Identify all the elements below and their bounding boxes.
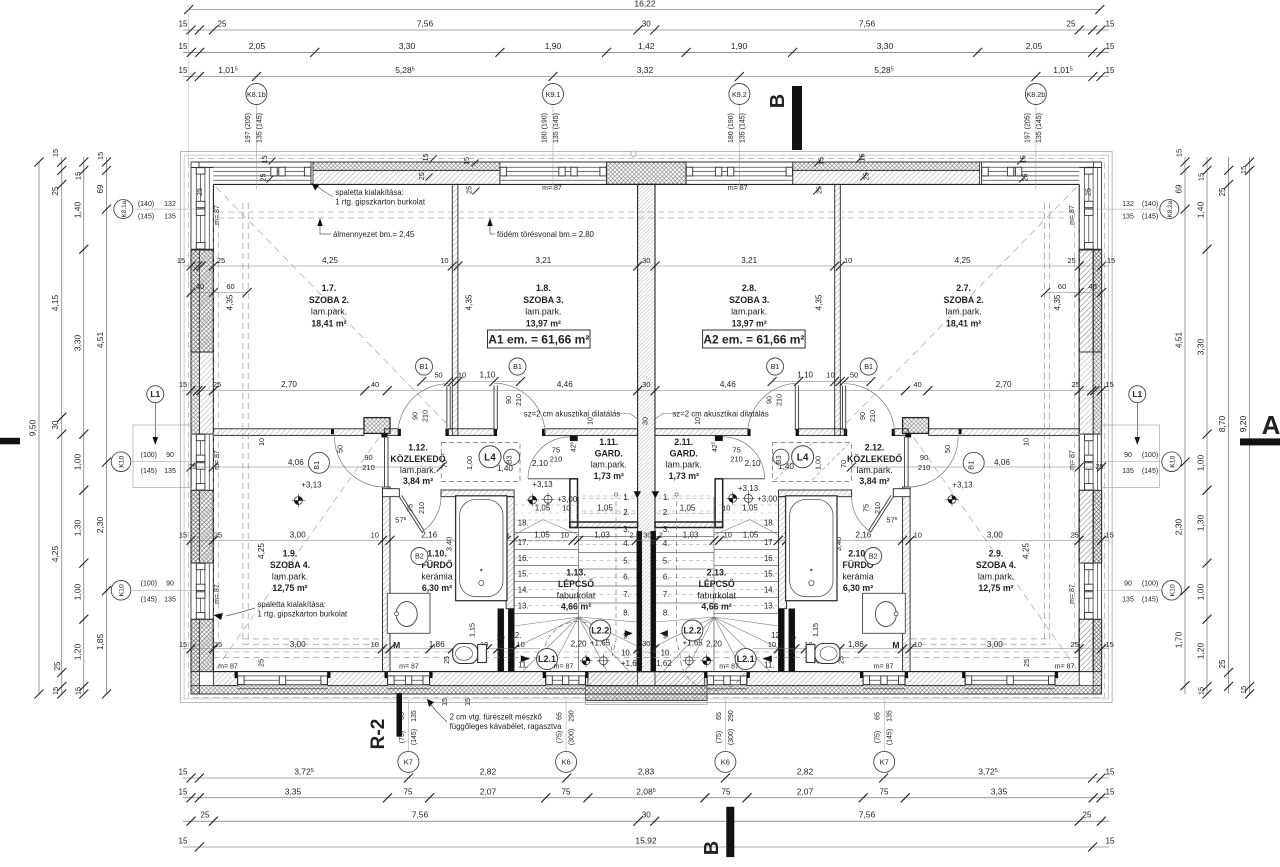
svg-text:B: B	[767, 94, 789, 108]
svg-text:25: 25	[1070, 531, 1078, 540]
svg-text:135: 135	[411, 710, 418, 722]
svg-text:K8.2a: K8.2a	[1167, 200, 1174, 217]
svg-text:1,05: 1,05	[535, 504, 551, 513]
svg-text:A: A	[1262, 410, 1280, 440]
svg-text:2,30: 2,30	[95, 516, 105, 533]
svg-text:K6: K6	[562, 758, 571, 767]
svg-text:2,16: 2,16	[855, 531, 871, 540]
svg-text:30: 30	[643, 531, 651, 540]
svg-text:1,05: 1,05	[742, 504, 758, 513]
svg-text:135 (145): 135 (145)	[256, 113, 263, 143]
svg-text:15: 15	[1019, 156, 1028, 164]
svg-text:30: 30	[642, 811, 651, 820]
svg-text:2,70: 2,70	[281, 380, 297, 389]
svg-text:lam.park.: lam.park.	[311, 307, 347, 317]
svg-text:2,20: 2,20	[571, 640, 587, 649]
svg-text:25: 25	[1083, 811, 1092, 820]
svg-text:25: 25	[814, 186, 823, 194]
svg-text:13.: 13.	[518, 601, 529, 610]
svg-text:+1,62: +1,62	[621, 659, 642, 668]
svg-text:3,30: 3,30	[73, 334, 83, 351]
svg-text:(145): (145)	[887, 729, 894, 745]
svg-text:15: 15	[1239, 686, 1248, 694]
svg-text:135: 135	[164, 214, 176, 221]
svg-text:lam.park.: lam.park.	[400, 465, 436, 475]
svg-text:B1: B1	[420, 362, 429, 371]
svg-text:25: 25	[464, 186, 473, 194]
svg-text:50: 50	[943, 445, 952, 453]
svg-text:8,70: 8,70	[1217, 415, 1227, 432]
svg-text:16,22: 16,22	[634, 0, 656, 9]
svg-text:födém törésvonal bm.= 2,80: födém törésvonal bm.= 2,80	[497, 230, 595, 239]
svg-text:LÉPCSŐ: LÉPCSŐ	[699, 578, 735, 589]
svg-text:210: 210	[918, 463, 931, 472]
svg-text:1,90: 1,90	[545, 41, 562, 51]
svg-text:25: 25	[256, 659, 265, 667]
svg-text:spaletta kialakítása:: spaletta kialakítása:	[335, 188, 403, 197]
svg-text:+3,00: +3,00	[757, 494, 778, 503]
svg-text:SZOBA 2.: SZOBA 2.	[309, 295, 349, 305]
svg-text:10: 10	[562, 504, 570, 513]
svg-text:K10: K10	[119, 455, 126, 467]
svg-text:SZOBA 4.: SZOBA 4.	[270, 560, 310, 570]
svg-text:1 rtg. gipszkarton burkolat: 1 rtg. gipszkarton burkolat	[258, 610, 349, 619]
svg-text:+3,13: +3,13	[301, 481, 322, 490]
svg-text:25: 25	[218, 20, 227, 29]
svg-text:4,35: 4,35	[226, 294, 235, 310]
svg-text:15: 15	[177, 256, 185, 265]
svg-text:15: 15	[1105, 380, 1113, 389]
svg-text:16.: 16.	[518, 554, 529, 563]
svg-text:30: 30	[641, 417, 650, 425]
svg-text:faburkolat: faburkolat	[557, 590, 596, 600]
svg-text:18.: 18.	[764, 519, 775, 528]
svg-text:25: 25	[1067, 20, 1076, 29]
svg-text:18,41 m²: 18,41 m²	[311, 319, 346, 329]
svg-text:30: 30	[642, 256, 650, 265]
svg-text:GARD.: GARD.	[670, 448, 698, 458]
svg-text:75: 75	[732, 446, 740, 455]
svg-text:m= 87: m= 87	[719, 664, 739, 671]
svg-text:15: 15	[1197, 687, 1206, 695]
svg-text:15: 15	[462, 157, 471, 165]
svg-text:15: 15	[1106, 787, 1115, 796]
svg-text:15.: 15.	[764, 569, 775, 578]
svg-text:4,46: 4,46	[557, 380, 573, 389]
svg-text:m= 87: m= 87	[399, 664, 419, 671]
svg-text:2.8.: 2.8.	[742, 283, 757, 293]
svg-text:12.: 12.	[511, 631, 522, 640]
svg-text:9.: 9.	[663, 632, 670, 641]
svg-text:30: 30	[642, 20, 651, 29]
svg-text:25: 25	[213, 380, 221, 389]
svg-text:(140): (140)	[138, 201, 154, 208]
svg-text:K8.1a: K8.1a	[121, 200, 128, 217]
svg-text:10.: 10.	[621, 648, 632, 657]
svg-text:4,06: 4,06	[994, 458, 1010, 467]
svg-text:1.: 1.	[623, 493, 630, 502]
svg-text:4,25: 4,25	[1022, 543, 1031, 559]
svg-text:13,97 m²: 13,97 m²	[526, 319, 561, 329]
svg-text:30: 30	[642, 380, 650, 389]
svg-text:2 cm vtg. fürészelt mészkő: 2 cm vtg. fürészelt mészkő	[450, 713, 543, 722]
svg-text:2,20: 2,20	[706, 640, 722, 649]
svg-text:K9.1: K9.1	[546, 90, 561, 99]
svg-text:3,21: 3,21	[741, 256, 757, 265]
svg-text:lam.park.: lam.park.	[525, 307, 561, 317]
svg-text:132: 132	[164, 201, 176, 208]
svg-text:10: 10	[826, 371, 834, 380]
svg-text:(145): (145)	[411, 729, 418, 745]
svg-text:(145): (145)	[141, 597, 157, 604]
svg-text:15: 15	[51, 687, 60, 695]
svg-text:L4: L4	[484, 452, 496, 463]
svg-text:lam.park.: lam.park.	[857, 465, 893, 475]
svg-text:(100): (100)	[141, 452, 157, 459]
svg-text:210: 210	[775, 394, 784, 406]
svg-text:135: 135	[887, 710, 894, 722]
svg-text:15: 15	[179, 837, 188, 846]
svg-text:18.: 18.	[518, 519, 529, 528]
svg-text:210: 210	[730, 455, 743, 464]
svg-text:(300): (300)	[569, 729, 576, 745]
svg-text:25: 25	[189, 462, 197, 471]
svg-text:K10: K10	[1169, 584, 1176, 596]
svg-text:210: 210	[417, 502, 426, 514]
svg-text:14.: 14.	[764, 585, 775, 594]
svg-text:6,30 m²: 6,30 m²	[843, 583, 873, 593]
svg-text:1.13.: 1.13.	[566, 568, 586, 578]
svg-text:75: 75	[880, 787, 889, 796]
svg-text:faburkolat: faburkolat	[697, 590, 736, 600]
svg-text:1,20: 1,20	[1196, 642, 1206, 659]
svg-text:(145): (145)	[1142, 597, 1158, 604]
svg-text:12,75 m²: 12,75 m²	[978, 583, 1013, 593]
svg-text:lam.park.: lam.park.	[591, 460, 627, 470]
svg-text:13.: 13.	[764, 601, 775, 610]
svg-text:10: 10	[724, 531, 732, 540]
svg-text:2.12.: 2.12.	[865, 443, 885, 453]
svg-text:4,25: 4,25	[322, 256, 338, 265]
svg-text:L2.1: L2.1	[737, 654, 755, 664]
svg-text:69: 69	[96, 184, 105, 193]
svg-text:25: 25	[1067, 256, 1075, 265]
svg-text:1,15: 1,15	[811, 623, 820, 637]
svg-text:1.: 1.	[663, 493, 670, 502]
svg-text:1.7.: 1.7.	[322, 283, 337, 293]
svg-text:75: 75	[404, 787, 413, 796]
svg-text:1,05: 1,05	[743, 531, 759, 540]
svg-text:90: 90	[920, 453, 928, 462]
svg-text:m= 87: m= 87	[214, 584, 221, 604]
svg-text:(145): (145)	[141, 468, 157, 475]
svg-text:25: 25	[258, 174, 267, 182]
svg-text:14.: 14.	[518, 585, 529, 594]
svg-text:+1,62: +1,62	[651, 659, 672, 668]
svg-text:3.: 3.	[663, 525, 670, 534]
svg-text:90: 90	[858, 412, 867, 420]
svg-text:10.: 10.	[661, 648, 672, 657]
svg-text:20: 20	[788, 635, 796, 642]
svg-text:15: 15	[817, 157, 826, 165]
svg-text:50: 50	[434, 371, 442, 380]
svg-text:30: 30	[642, 641, 650, 648]
svg-text:4,35: 4,35	[1053, 294, 1062, 310]
svg-text:m= 87: m= 87	[728, 185, 748, 192]
svg-text:m= 87: m= 87	[554, 664, 574, 671]
svg-text:10: 10	[458, 371, 466, 380]
svg-text:90: 90	[1124, 452, 1132, 459]
svg-text:15.: 15.	[518, 569, 529, 578]
svg-text:1,42: 1,42	[638, 41, 655, 51]
svg-text:15: 15	[858, 154, 867, 162]
svg-text:210: 210	[873, 502, 882, 514]
svg-text:10: 10	[440, 256, 448, 265]
svg-text:135 (145): 135 (145)	[553, 113, 560, 143]
svg-text:3,30: 3,30	[399, 41, 416, 51]
svg-text:álmennyezet bm.= 2,45: álmennyezet bm.= 2,45	[333, 230, 415, 239]
svg-text:50: 50	[336, 445, 345, 453]
svg-text:25: 25	[1084, 188, 1093, 196]
svg-text:4,25: 4,25	[955, 256, 971, 265]
svg-text:75: 75	[722, 787, 731, 796]
svg-text:2,07: 2,07	[480, 786, 497, 796]
svg-text:210: 210	[868, 410, 877, 422]
svg-text:40: 40	[196, 282, 204, 291]
svg-text:4,06: 4,06	[288, 458, 304, 467]
svg-text:132: 132	[1122, 201, 1134, 208]
svg-text:135: 135	[1122, 214, 1134, 221]
svg-text:15: 15	[179, 380, 187, 389]
svg-text:25: 25	[417, 172, 426, 180]
svg-text:(140): (140)	[1142, 201, 1158, 208]
svg-text:15: 15	[179, 787, 188, 796]
svg-text:18,41 m²: 18,41 m²	[946, 319, 981, 329]
svg-text:15: 15	[179, 640, 187, 649]
svg-text:15: 15	[51, 149, 60, 157]
svg-text:kerámia: kerámia	[842, 572, 873, 582]
svg-text:1,05: 1,05	[597, 504, 613, 513]
svg-text:10: 10	[768, 640, 776, 649]
svg-text:1,15: 1,15	[468, 623, 477, 637]
svg-text:210: 210	[421, 410, 430, 422]
svg-text:15: 15	[421, 154, 430, 162]
svg-text:1 rtg. gipszkarton burkolat: 1 rtg. gipszkarton burkolat	[335, 198, 426, 207]
svg-text:40: 40	[913, 380, 921, 389]
svg-text:6,30 m²: 6,30 m²	[422, 583, 452, 593]
svg-text:R-2: R-2	[368, 719, 389, 750]
svg-text:15: 15	[179, 531, 187, 540]
svg-text:135 (145): 135 (145)	[1036, 113, 1043, 143]
svg-text:spaletta kialakítása:: spaletta kialakítása:	[258, 600, 326, 609]
svg-text:60: 60	[226, 282, 234, 291]
svg-text:70: 70	[440, 460, 449, 468]
svg-text:A1 em. = 61,66 m²: A1 em. = 61,66 m²	[488, 333, 589, 347]
svg-text:4,15: 4,15	[50, 294, 60, 311]
svg-text:5.: 5.	[663, 557, 670, 566]
svg-text:2.13.: 2.13.	[707, 568, 727, 578]
svg-text:210: 210	[550, 455, 563, 464]
svg-text:1.12.: 1.12.	[408, 443, 428, 453]
svg-text:1,86: 1,86	[429, 640, 445, 649]
svg-text:8.: 8.	[623, 608, 630, 617]
svg-text:(75): (75)	[557, 731, 564, 743]
svg-text:1,05: 1,05	[680, 504, 696, 513]
svg-text:(300): (300)	[728, 729, 735, 745]
svg-text:1,10: 1,10	[797, 371, 813, 380]
svg-text:15: 15	[465, 698, 472, 706]
svg-text:4,35: 4,35	[814, 294, 823, 310]
svg-text:180 (190): 180 (190)	[542, 113, 549, 143]
svg-text:1,73 m²: 1,73 m²	[669, 471, 699, 481]
svg-text:2.: 2.	[663, 508, 670, 517]
svg-text:9,50: 9,50	[28, 419, 38, 436]
svg-text:L1: L1	[150, 389, 160, 399]
svg-text:210: 210	[514, 394, 523, 406]
svg-text:30: 30	[51, 420, 60, 429]
svg-text:B2: B2	[415, 552, 424, 561]
svg-text:6.: 6.	[623, 572, 630, 581]
svg-text:lam.park.: lam.park.	[666, 460, 702, 470]
svg-text:+3,13: +3,13	[952, 481, 973, 490]
svg-text:25: 25	[1070, 640, 1078, 649]
svg-text:17.: 17.	[764, 538, 775, 547]
svg-text:3,00: 3,00	[987, 640, 1003, 649]
svg-text:4,25: 4,25	[50, 545, 60, 562]
svg-text:K9.2: K9.2	[732, 90, 747, 99]
svg-text:15: 15	[96, 152, 105, 160]
svg-text:25: 25	[195, 188, 204, 196]
svg-text:m= 87: m= 87	[1055, 664, 1075, 671]
svg-text:1,40: 1,40	[1196, 201, 1206, 218]
svg-text:1,03: 1,03	[683, 531, 699, 540]
svg-text:135: 135	[1122, 597, 1134, 604]
svg-text:2,10: 2,10	[745, 459, 761, 468]
svg-text:3,00: 3,00	[987, 531, 1003, 540]
svg-text:25: 25	[1218, 187, 1227, 196]
svg-text:16.: 16.	[764, 554, 775, 563]
svg-text:4,35: 4,35	[464, 294, 473, 310]
svg-text:12,75 m²: 12,75 m²	[272, 583, 307, 593]
svg-text:15,92: 15,92	[635, 836, 657, 846]
svg-text:4,66 m²: 4,66 m²	[561, 602, 591, 612]
svg-text:15: 15	[179, 768, 188, 777]
svg-text:7,56: 7,56	[412, 810, 429, 820]
svg-text:25: 25	[1022, 659, 1031, 667]
svg-text:7,56: 7,56	[417, 19, 434, 29]
svg-text:40: 40	[1088, 282, 1096, 291]
svg-text:(100): (100)	[141, 581, 157, 588]
svg-text:B2: B2	[869, 552, 878, 561]
svg-text:10: 10	[371, 531, 379, 540]
svg-text:LÉPCSŐ: LÉPCSŐ	[558, 578, 594, 589]
svg-text:65: 65	[716, 712, 723, 720]
svg-text:1,30: 1,30	[73, 519, 83, 536]
svg-text:1,03: 1,03	[594, 531, 610, 540]
svg-text:25: 25	[51, 186, 60, 195]
svg-text:7.: 7.	[623, 590, 630, 599]
svg-text:25: 25	[214, 531, 222, 540]
svg-text:20: 20	[497, 635, 505, 642]
svg-text:15: 15	[1106, 768, 1115, 777]
svg-text:3,00: 3,00	[290, 531, 306, 540]
svg-text:K8.1b: K8.1b	[247, 90, 266, 99]
svg-text:M: M	[892, 640, 899, 650]
svg-text:3.: 3.	[623, 525, 630, 534]
svg-text:69: 69	[1175, 184, 1184, 193]
svg-text:L2.2: L2.2	[683, 626, 701, 636]
svg-text:4.: 4.	[623, 539, 630, 548]
svg-text:6.: 6.	[663, 572, 670, 581]
svg-text:2,05: 2,05	[1026, 41, 1043, 51]
svg-text:1.11.: 1.11.	[599, 437, 618, 447]
svg-text:9.: 9.	[623, 632, 630, 641]
svg-text:2,82: 2,82	[480, 767, 497, 777]
svg-text:135: 135	[164, 597, 176, 604]
svg-text:(145): (145)	[1142, 214, 1158, 221]
svg-text:10: 10	[914, 640, 922, 649]
svg-text:K6: K6	[721, 758, 730, 767]
svg-text:1,73 m²: 1,73 m²	[594, 471, 624, 481]
svg-text:B1: B1	[967, 461, 976, 470]
svg-text:1,86: 1,86	[848, 640, 864, 649]
svg-text:m= 87: m= 87	[874, 664, 894, 671]
svg-text:2.7.: 2.7.	[956, 283, 971, 293]
svg-text:A2 em. = 61,66 m²: A2 em. = 61,66 m²	[703, 333, 804, 347]
svg-text:m= 87: m= 87	[214, 205, 221, 225]
svg-text:4,46: 4,46	[720, 380, 736, 389]
svg-text:50: 50	[850, 371, 858, 380]
svg-text:lam.park.: lam.park.	[978, 572, 1014, 582]
svg-text:3,35: 3,35	[991, 786, 1008, 796]
svg-text:2,83: 2,83	[638, 767, 655, 777]
svg-text:3,21: 3,21	[535, 256, 551, 265]
svg-text:10: 10	[371, 640, 379, 649]
svg-text:90: 90	[1124, 581, 1132, 588]
svg-text:15: 15	[1106, 66, 1115, 75]
svg-text:(145): (145)	[1142, 468, 1158, 475]
svg-text:10: 10	[914, 531, 922, 540]
svg-text:13,97 m²: 13,97 m²	[732, 319, 767, 329]
svg-text:90: 90	[364, 453, 372, 462]
svg-text:2,16: 2,16	[421, 531, 437, 540]
svg-text:B: B	[701, 841, 723, 855]
svg-text:B1: B1	[513, 362, 522, 371]
svg-text:L1: L1	[1132, 389, 1142, 399]
svg-text:15: 15	[1107, 256, 1115, 265]
svg-text:(75): (75)	[875, 731, 882, 743]
svg-text:M: M	[393, 640, 400, 650]
svg-text:1.9.: 1.9.	[283, 549, 298, 559]
svg-text:2.9.: 2.9.	[989, 549, 1004, 559]
svg-text:2,30: 2,30	[1174, 518, 1184, 535]
svg-text:15: 15	[1197, 173, 1206, 181]
svg-text:GARD.: GARD.	[595, 448, 623, 458]
svg-text:10: 10	[844, 256, 852, 265]
svg-text:1,30: 1,30	[1196, 514, 1206, 531]
svg-text:7.: 7.	[663, 590, 670, 599]
svg-text:25: 25	[217, 256, 225, 265]
svg-text:m= 87: m= 87	[542, 185, 562, 192]
svg-text:K7: K7	[404, 758, 413, 767]
svg-text:+3,13: +3,13	[532, 480, 553, 489]
svg-text:B3: B3	[774, 455, 783, 464]
svg-text:15: 15	[1106, 42, 1115, 51]
svg-text:2,70: 2,70	[996, 380, 1012, 389]
svg-text:3,84 m²: 3,84 m²	[859, 476, 889, 486]
svg-text:(100): (100)	[1142, 452, 1158, 459]
svg-text:75: 75	[862, 504, 871, 512]
